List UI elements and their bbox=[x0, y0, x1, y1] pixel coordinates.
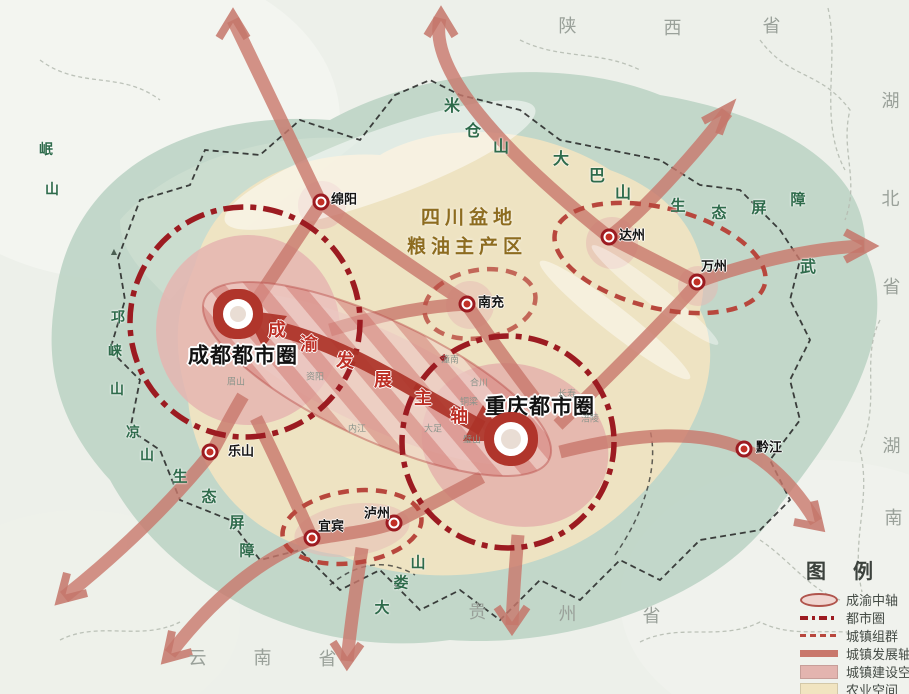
legend-symbol-band bbox=[800, 647, 840, 660]
planning-map: 米仓山大巴山生态屏障武岷山邛崃山凉山生态屏障山娄大陕西省湖北省湖南贵州省云南省四… bbox=[0, 0, 909, 694]
legend-item: 成渝中轴 bbox=[800, 593, 908, 606]
legend-item-label: 都市圈 bbox=[846, 608, 885, 627]
legend-symbol-dashdot bbox=[800, 611, 840, 624]
legend-item: 城镇建设空间 bbox=[800, 665, 908, 678]
legend-item-label: 农业空间 bbox=[846, 680, 898, 694]
legend-item: 都市圈 bbox=[800, 611, 908, 624]
map-canvas bbox=[0, 0, 909, 694]
legend-symbol-urban bbox=[800, 665, 840, 678]
legend-title: 图 例 bbox=[806, 555, 908, 584]
legend-symbol-axis bbox=[800, 593, 840, 606]
legend-item-label: 成渝中轴 bbox=[846, 590, 898, 609]
legend-item: 农业空间 bbox=[800, 683, 908, 694]
legend-item-label: 城镇建设空间 bbox=[846, 662, 909, 681]
legend-item: 城镇发展轴带 bbox=[800, 647, 908, 660]
legend-item-label: 城镇发展轴带 bbox=[846, 644, 909, 663]
legend: 图 例 成渝中轴都市圈城镇组群城镇发展轴带城镇建设空间农业空间生态空间 bbox=[800, 555, 908, 694]
legend-symbol-agri bbox=[800, 683, 840, 694]
legend-item: 城镇组群 bbox=[800, 629, 908, 642]
legend-symbol-dashed bbox=[800, 629, 840, 642]
legend-item-label: 城镇组群 bbox=[846, 626, 898, 645]
